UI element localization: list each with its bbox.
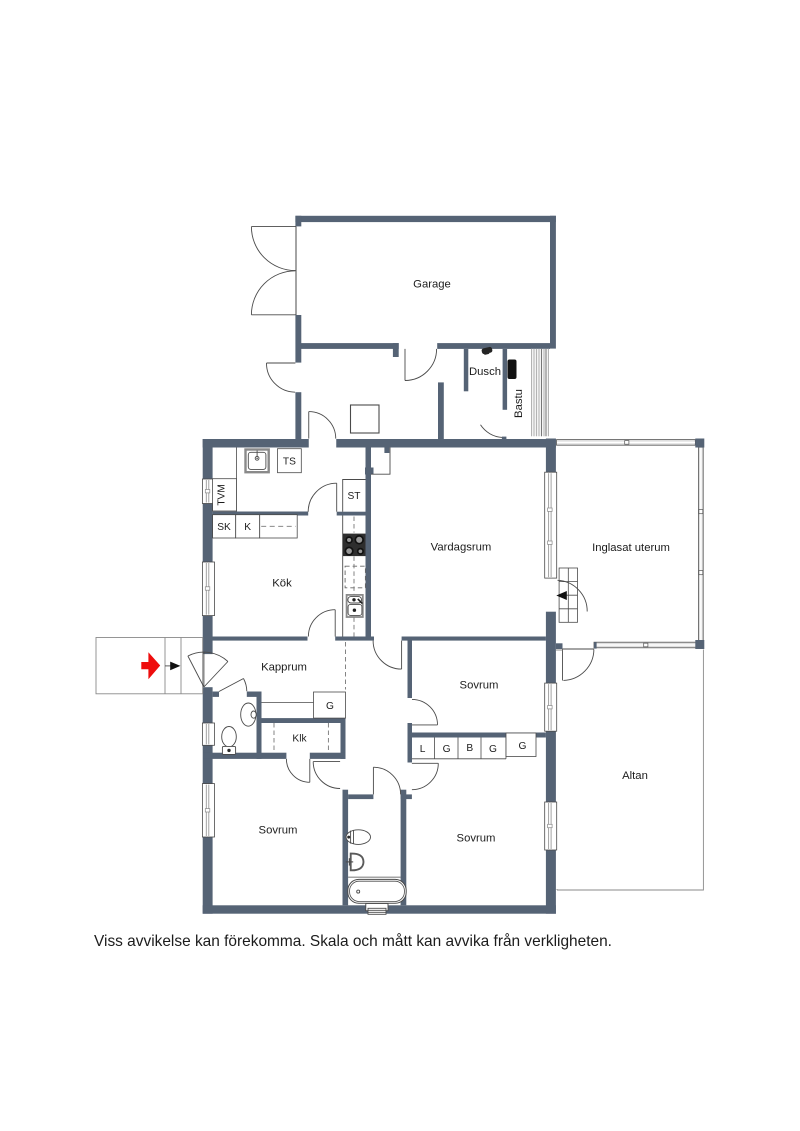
svg-text:G: G — [443, 744, 451, 755]
svg-text:Bastu: Bastu — [513, 389, 525, 418]
svg-text:TVM: TVM — [217, 484, 228, 506]
svg-text:SK: SK — [217, 522, 231, 533]
svg-text:Sovrum: Sovrum — [259, 825, 298, 837]
svg-text:Klk: Klk — [292, 734, 307, 745]
svg-text:Dusch: Dusch — [469, 366, 501, 378]
svg-text:TS: TS — [283, 456, 296, 467]
svg-text:Kök: Kök — [272, 578, 292, 590]
svg-text:Sovrum: Sovrum — [460, 680, 499, 692]
svg-text:Sovrum: Sovrum — [457, 833, 496, 845]
svg-text:L: L — [420, 744, 426, 755]
svg-text:Garage: Garage — [413, 279, 451, 291]
svg-text:K: K — [244, 522, 251, 533]
svg-text:ST: ST — [347, 491, 360, 502]
svg-text:Altan: Altan — [622, 770, 648, 782]
svg-text:B: B — [466, 743, 473, 754]
svg-text:Viss avvikelse kan förekomma.: Viss avvikelse kan förekomma. Skala och … — [94, 933, 612, 950]
svg-text:Kapprum: Kapprum — [261, 662, 307, 674]
svg-text:G: G — [519, 741, 527, 752]
svg-text:Vardagsrum: Vardagsrum — [431, 542, 492, 554]
svg-text:G: G — [489, 744, 497, 755]
svg-text:Inglasat uterum: Inglasat uterum — [592, 542, 670, 554]
svg-text:G: G — [326, 701, 334, 712]
